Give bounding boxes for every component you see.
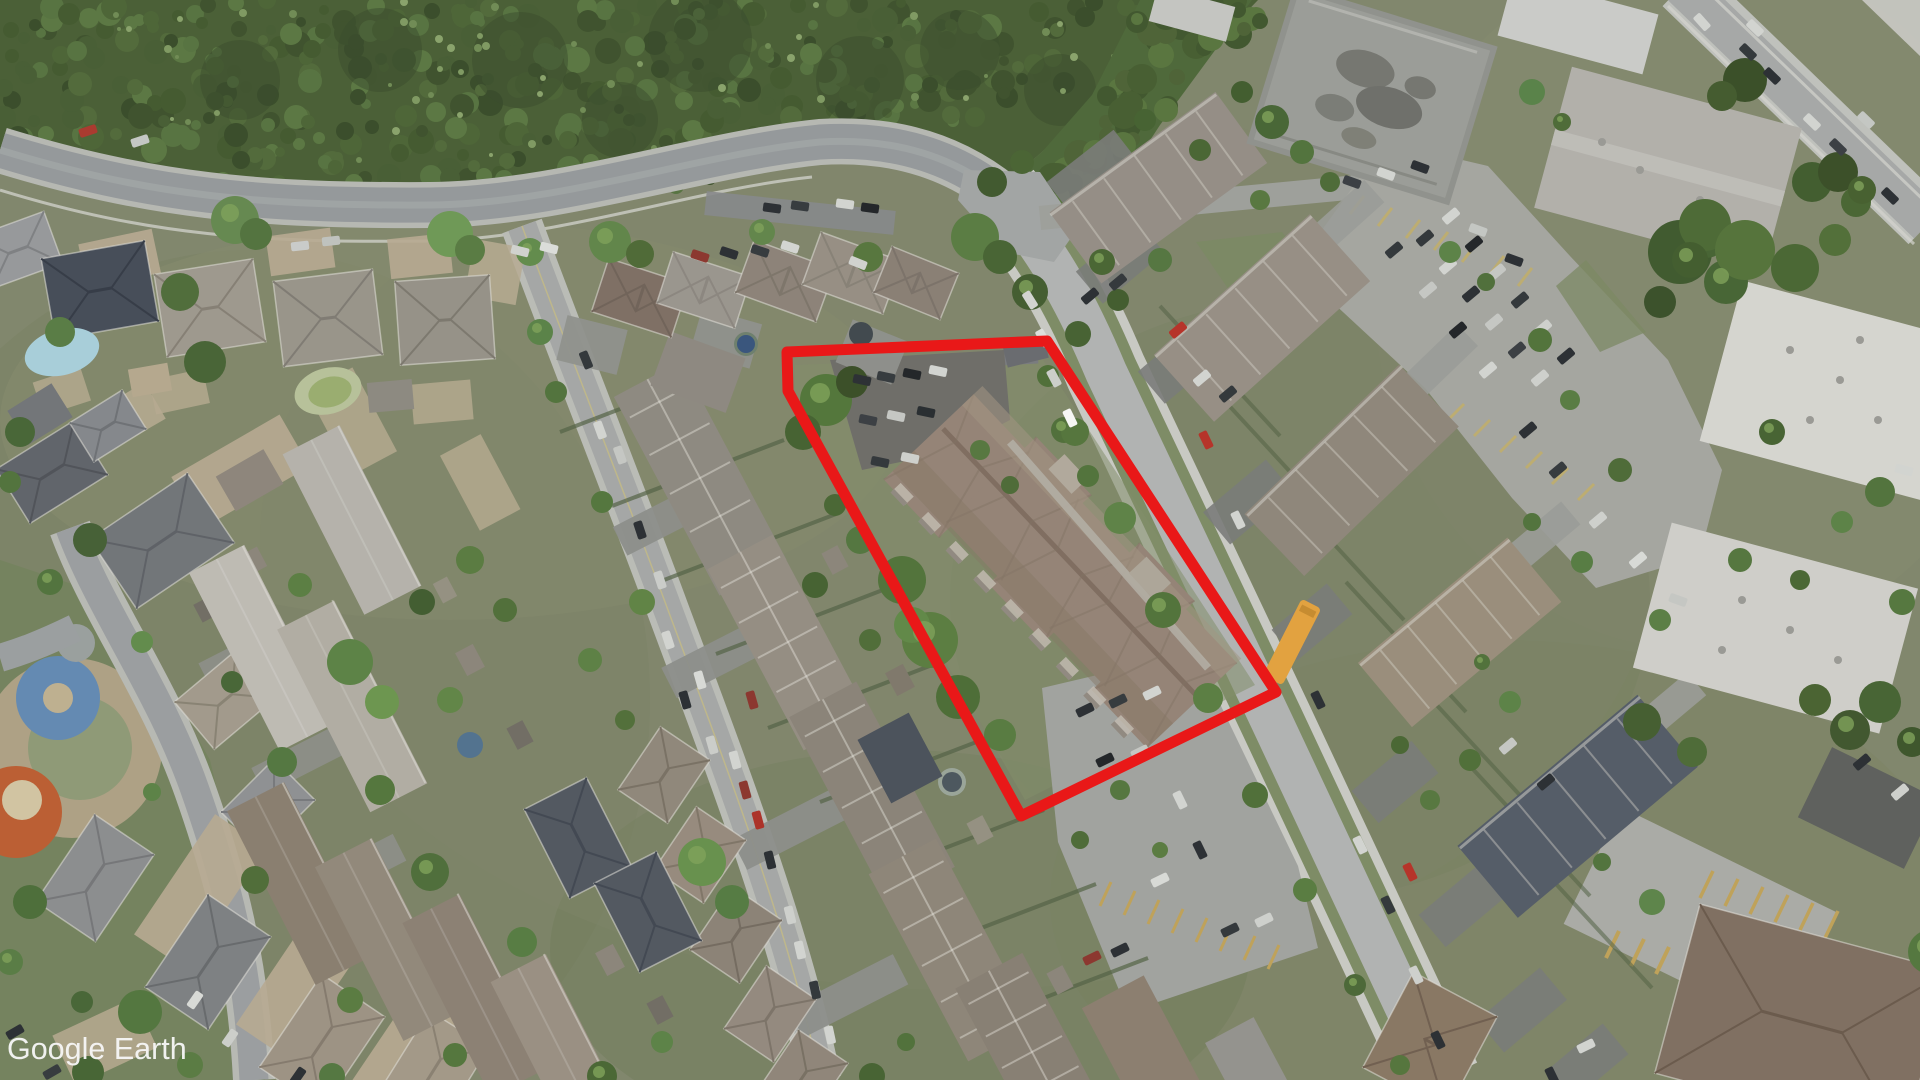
svg-text:Google Earth: Google Earth bbox=[7, 1032, 187, 1066]
